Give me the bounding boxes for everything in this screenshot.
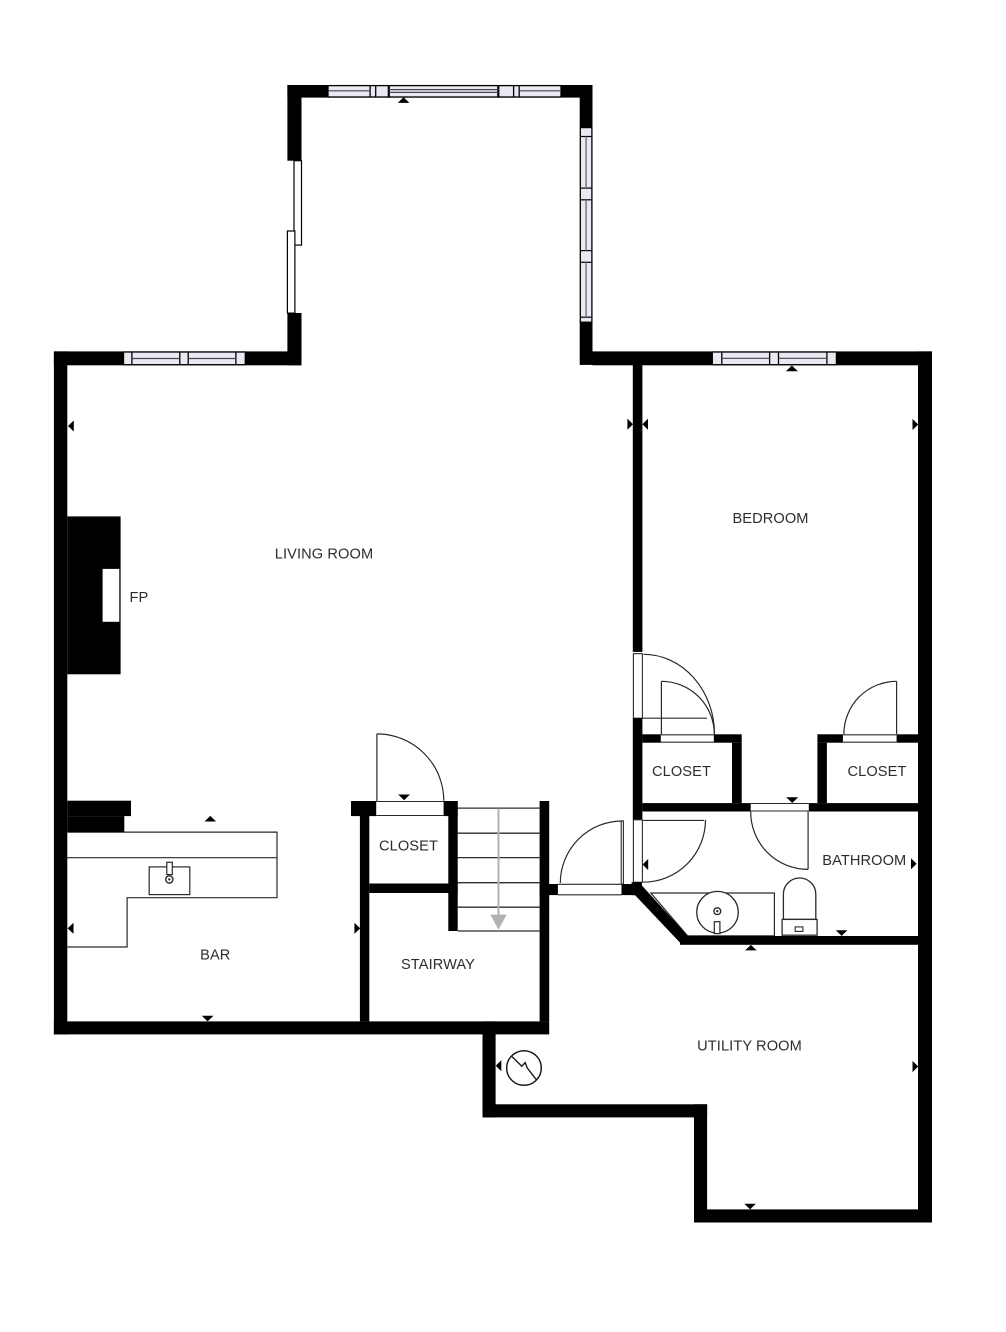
svg-text:CLOSET: CLOSET bbox=[379, 838, 438, 854]
svg-text:CLOSET: CLOSET bbox=[848, 764, 907, 780]
svg-text:UTILITY ROOM: UTILITY ROOM bbox=[697, 1038, 802, 1054]
svg-text:STAIRWAY: STAIRWAY bbox=[401, 957, 475, 973]
svg-text:FP: FP bbox=[129, 590, 148, 606]
svg-text:CLOSET: CLOSET bbox=[652, 764, 711, 780]
svg-text:LIVING ROOM: LIVING ROOM bbox=[275, 547, 373, 563]
svg-text:BAR: BAR bbox=[200, 947, 230, 963]
svg-text:BEDROOM: BEDROOM bbox=[732, 511, 808, 527]
svg-text:BATHROOM: BATHROOM bbox=[822, 853, 906, 869]
